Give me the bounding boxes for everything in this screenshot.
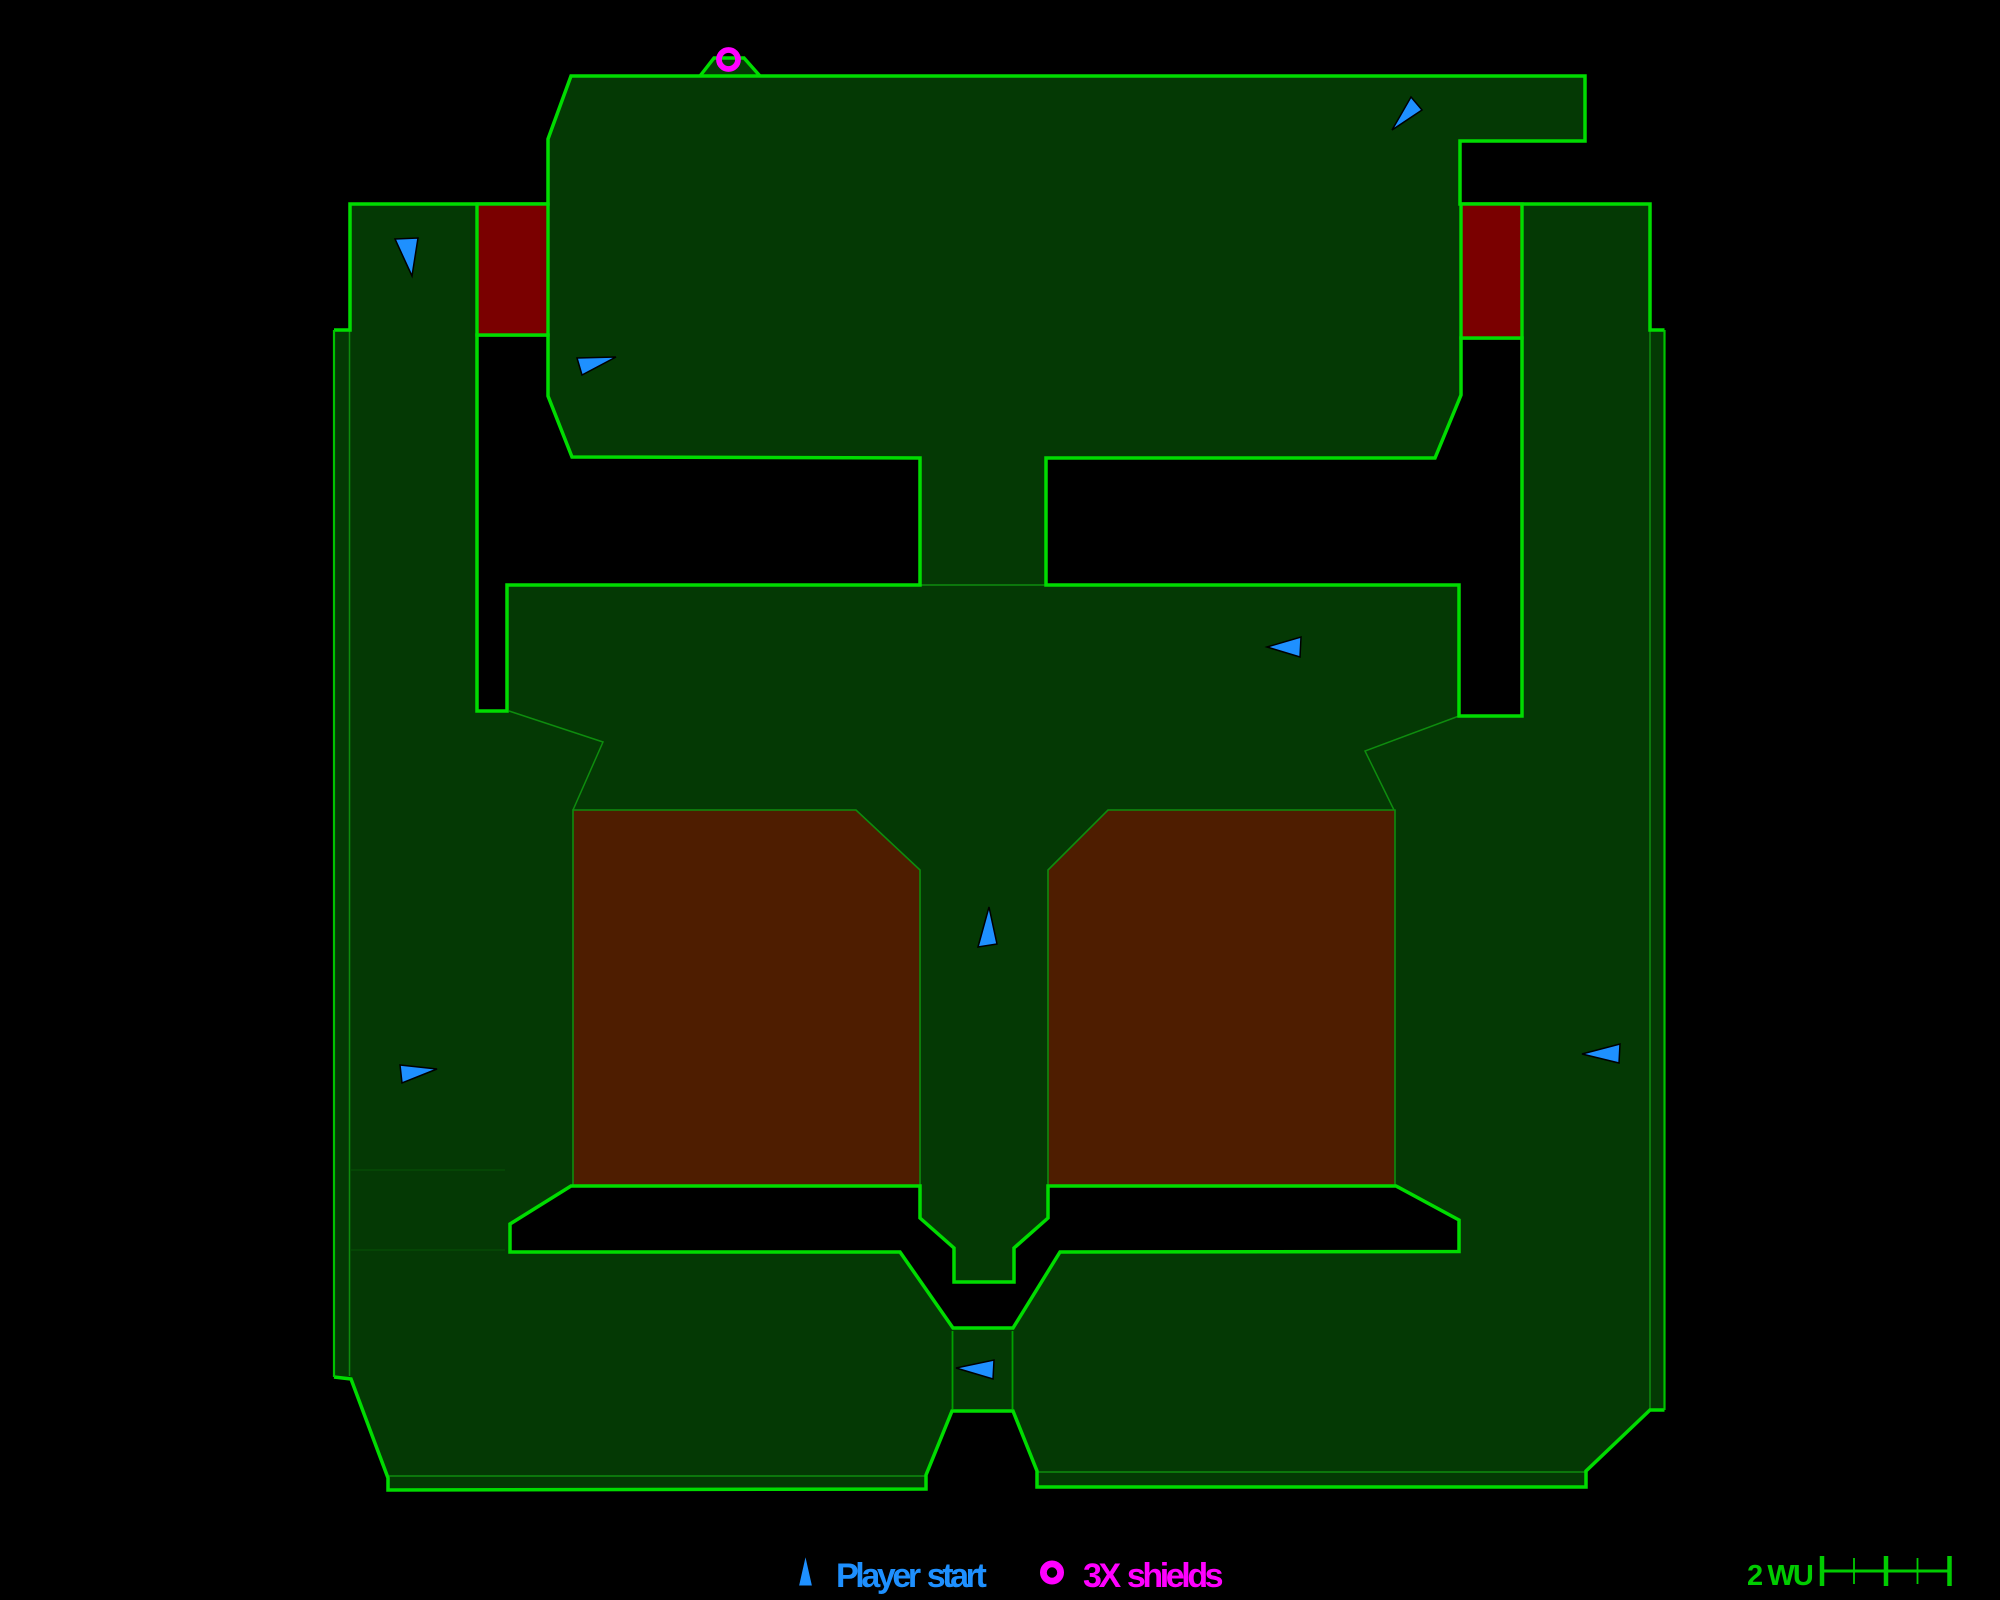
- svg-text:3X shields: 3X shields: [1083, 1557, 1223, 1595]
- svg-text:2 WU: 2 WU: [1747, 1560, 1813, 1592]
- svg-text:Player start: Player start: [836, 1557, 987, 1595]
